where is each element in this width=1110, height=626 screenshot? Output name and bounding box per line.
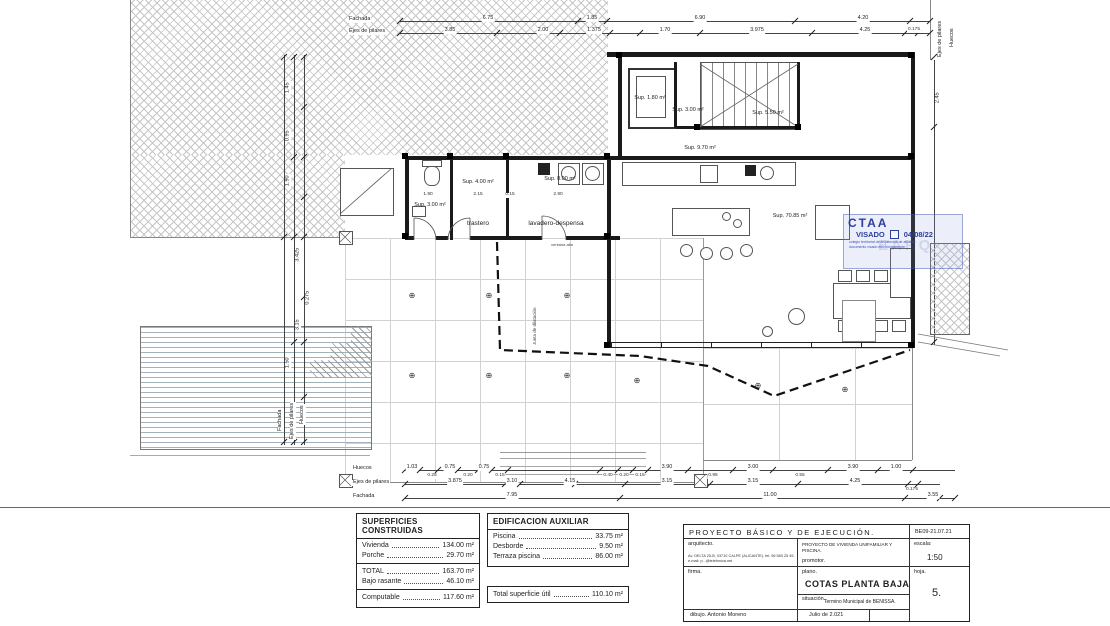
dim-label: 3.85 [444, 28, 457, 34]
level-marker-icon: ⊕ [409, 372, 416, 380]
drawing-sheet: ⊕ ⊕ ⊕ ⊕ ⊕ ⊕ ⊕ ⊕ ⊕ Sup. 3.00 m² Sup. 4.00… [0, 0, 1110, 626]
dim-label: 1.50 [285, 356, 291, 369]
dim-label: 4.20 [857, 16, 870, 22]
edificacion-auxiliar-table: EDIFICACION AUXILIAR Piscina33.75 m² Des… [487, 513, 629, 567]
dim-label: 2.45 [935, 91, 941, 104]
terrace-column [339, 474, 353, 488]
door-arc-1 [414, 218, 436, 240]
situacion-label: situación. [802, 596, 825, 602]
row-label: Porche [362, 552, 384, 559]
dim-label: 7.95 [506, 493, 519, 499]
junta-dilatacion-label: Junta de dilatación [532, 307, 537, 345]
column [604, 342, 610, 348]
corridor-area-label: Sup. 9.70 m² [684, 146, 716, 152]
dim-label: 3.875 [447, 479, 463, 485]
axis-fachada-bottom: Fachada [352, 494, 375, 500]
wall-service-left [405, 156, 409, 240]
axis-ejes-right: Ejes de pilares [938, 20, 944, 58]
title-block: PROYECTO BÁSICO Y DE EJECUCIÓN. BE09-21.… [683, 524, 970, 622]
axis-fachada-top: Fachada [348, 17, 371, 23]
dim-label: 2.15 [472, 193, 483, 198]
ventana-alta-label: ventana alta [551, 243, 573, 247]
stairs-area-label: Sup. 5.50 m² [752, 111, 784, 117]
axis-ejes-bottom: Ejes de pilares [352, 480, 390, 486]
dim-label: 1.85 [586, 16, 599, 22]
row-label: Desborde [493, 543, 523, 550]
promotor-label: promotor. [802, 558, 825, 564]
dim-label: 0.20 [462, 474, 473, 479]
axis-ejes-top: Ejes de pilares [348, 29, 386, 35]
living-area-label: Sup. 70.85 m² [773, 214, 808, 220]
column [616, 52, 622, 58]
hall-area-label: Sup. 3.00 m² [672, 108, 704, 114]
superficie-util-box: Total superficie útil110.10 m² [487, 586, 629, 603]
table-row: Piscina33.75 m² [493, 533, 623, 540]
dim-label: 1.45 [285, 81, 291, 94]
dim-label: 1.90 [422, 193, 433, 198]
dim-label: 0.55 [794, 474, 805, 479]
table-row: Terraza piscina86.00 m² [493, 553, 623, 560]
pouf [762, 326, 773, 337]
dim-line [400, 21, 930, 22]
fecha-value: Julio de 2.021 [809, 612, 843, 618]
wall-stairs-right [797, 62, 800, 128]
lightwell-square [340, 168, 394, 216]
stool [720, 247, 733, 260]
axis-fachada-left: Fachada [278, 409, 284, 432]
escala-label: escala: [914, 541, 931, 547]
dim-label: 3.425 [295, 247, 301, 263]
table-row: Total superficie útil110.10 m² [493, 591, 623, 598]
wall-service-bottom-4 [566, 236, 620, 240]
row-value: 29.70 m² [446, 552, 474, 559]
dim-label: 0.75 [478, 465, 491, 471]
project-description: PROYECTO DE VIVIENDA UNIFAMILIAR Y PISCI… [802, 542, 906, 554]
level-marker-icon: ⊕ [755, 382, 762, 390]
dim-label: 4.25 [859, 28, 872, 34]
dim-label: 2.90 [552, 193, 563, 198]
table-title: SUPERFICIES CONSTRUIDAS [357, 517, 479, 539]
pool-lower-line [130, 455, 370, 456]
terrace-bottom-edge-right [703, 460, 912, 461]
burner-icon [733, 219, 742, 228]
wall-trastero-lavadero [506, 156, 509, 240]
plano-value: COTAS PLANTA BAJA [805, 579, 909, 589]
dim-label: 1.03 [406, 465, 419, 471]
terrace-column [694, 474, 708, 488]
exterior-steps-right [918, 334, 1008, 356]
row-label: Total superficie útil [493, 591, 551, 598]
dim-label: 0.15 [504, 193, 515, 198]
toilet-icon [424, 166, 440, 186]
level-marker-icon: ⊕ [409, 292, 416, 300]
row-value: 9.50 m² [599, 543, 623, 550]
row-value: 86.00 m² [595, 553, 623, 560]
axis-huecos-left: Huecos [300, 404, 306, 425]
wall-elevator-right [674, 62, 677, 128]
dim-label: 4.25 [849, 479, 862, 485]
pouf [788, 308, 805, 325]
table-separator [357, 589, 479, 590]
dim-line [284, 55, 285, 445]
dryer-drum-icon [585, 166, 600, 181]
axis-ejes-left: Ejes de pilares [290, 402, 296, 440]
dim-label: 3.00 [747, 465, 760, 471]
chair [856, 270, 870, 282]
row-value: 33.75 m² [595, 533, 623, 540]
row-value: 46.10 m² [446, 578, 474, 585]
sink-icon [760, 166, 774, 180]
column [908, 153, 914, 159]
chair [892, 320, 906, 332]
column [447, 153, 453, 159]
superficies-construidas-table: SUPERFICIES CONSTRUIDAS Vivienda134.00 m… [356, 513, 480, 608]
burner-icon [722, 212, 731, 221]
dim-label: 0.95 [285, 129, 291, 142]
table-row: Porche29.70 m² [362, 552, 474, 559]
dim-label: 3.975 [749, 28, 765, 34]
bath-area-label: Sup. 3.00 m² [414, 203, 446, 209]
wall-living-top [607, 156, 915, 160]
trastero-area-label: Sup. 4.00 m² [462, 180, 494, 186]
dim-line [405, 498, 955, 499]
table-row: Vivienda134.00 m² [362, 542, 474, 549]
column [604, 153, 610, 159]
chair [874, 270, 888, 282]
level-marker-icon: ⊕ [486, 292, 493, 300]
ground-hatch-topleft [130, 0, 608, 155]
dim-label: 3.10 [506, 479, 519, 485]
wall-bath-trastero [450, 156, 453, 240]
site-edge-left [130, 0, 131, 238]
row-label: Vivienda [362, 542, 389, 549]
hoja-label: hoja. [914, 569, 926, 575]
dim-label: 0.15 [634, 474, 645, 479]
dim-label: 3.90 [847, 465, 860, 471]
appliance-icon [538, 163, 550, 175]
level-marker-icon: ⊕ [486, 372, 493, 380]
dim-label: 0.20 [618, 474, 629, 479]
trastero-name-label: trastero [467, 221, 489, 228]
wall-living-left [607, 156, 611, 348]
project-ref: BE09-21.07.21 [915, 529, 952, 535]
row-label: Computable [362, 594, 400, 601]
dim-label: 0.95 [707, 474, 718, 479]
dim-label: 0.40 [602, 474, 613, 479]
lavadero-area-label: Sup. 8.00 m² [544, 177, 576, 183]
column [604, 233, 610, 239]
table-row: Computable117.60 m² [362, 594, 474, 601]
row-label: Terraza piscina [493, 553, 540, 560]
project-title: PROYECTO BÁSICO Y DE EJECUCIÓN. [689, 528, 875, 537]
wall-living-right [911, 55, 915, 348]
dibujo-credit: dibujo. Antonio Moreno [690, 612, 746, 618]
stool [700, 247, 713, 260]
dim-label: 0.75 [444, 465, 457, 471]
axis-huecos-bottom: Huecos [352, 466, 373, 472]
table-row: Bajo rasante46.10 m² [362, 578, 474, 585]
visado-stamp: CTAA EARQ VISADO 04/08/22 colegio territ… [843, 214, 963, 269]
toilet-tank-icon [422, 160, 442, 167]
column [795, 124, 801, 130]
arquitecto-address-1: Av. DELTA 25-B, 03710 CALPE (ALICANTE). … [688, 554, 795, 558]
escala-value: 1:50 [927, 553, 943, 562]
situacion-value: Termino Municipal de BENISSA. [824, 599, 896, 605]
column [402, 233, 408, 239]
dim-label: 2.00 [537, 28, 550, 34]
dim-label: 6.90 [694, 16, 707, 22]
terrace-column [339, 231, 353, 245]
chair [838, 270, 852, 282]
plano-label: plano. [802, 569, 817, 575]
wall-site-top [607, 52, 915, 57]
row-value: 110.10 m² [592, 591, 623, 598]
chair [874, 320, 888, 332]
dim-label: 1.375 [586, 28, 602, 34]
dim-label: 3.15 [295, 318, 301, 331]
terrace-top-edge [130, 237, 345, 238]
table-title: EDIFICACION AUXILIAR [488, 517, 628, 530]
level-marker-icon: ⊕ [842, 386, 849, 394]
wall-service-top [405, 156, 620, 160]
stool [680, 244, 693, 257]
site-edge-top-right [930, 0, 931, 60]
stamp-org-label: CTAA [844, 215, 962, 230]
dim-label: 3.15 [661, 479, 674, 485]
dim-label: 1.70 [659, 28, 672, 34]
terrace-right-edge [912, 348, 913, 460]
dim-label: 0.15 [494, 474, 505, 479]
terrace-tile-grid-right [703, 348, 912, 460]
column [503, 153, 509, 159]
hoja-value: 5. [932, 587, 941, 599]
dim-label: 0.25 [426, 474, 437, 479]
stool [740, 244, 753, 257]
dim-label: 0.275 [305, 290, 311, 306]
dim-line [304, 55, 305, 445]
ground-hatch-leftcol [130, 155, 345, 238]
stamp-watermark: EARQ [878, 237, 933, 254]
dim-label: 3.55 [927, 493, 940, 499]
column [908, 342, 914, 348]
sheet-separator [0, 507, 1110, 508]
table-separator [357, 563, 479, 564]
column [908, 52, 914, 58]
elevator-area-label: Sup. 1.80 m² [634, 96, 666, 102]
level-marker-icon: ⊕ [564, 292, 571, 300]
level-marker-icon: ⊕ [564, 372, 571, 380]
row-label: Piscina [493, 533, 516, 540]
dim-label: 11.00 [762, 493, 777, 499]
table-row: Desborde9.50 m² [493, 543, 623, 550]
firma-label: firma. [688, 569, 702, 575]
terrace-bottom-edge [345, 482, 703, 483]
glazing-south-facade [611, 342, 911, 348]
dim-label: 1.00 [890, 465, 903, 471]
level-marker-icon: ⊕ [634, 377, 641, 385]
axis-huecos-right: Huecos [950, 27, 956, 48]
oven-icon [745, 165, 756, 176]
staircase [700, 62, 800, 130]
dim-label: 4.15 [564, 479, 577, 485]
lavadero-name-label: lavadero-despensa [528, 221, 583, 228]
arquitecto-label: arquitecto. [688, 541, 714, 547]
dim-label: 3.15 [747, 479, 760, 485]
dim-label: 6.75 [482, 16, 495, 22]
dim-label: 1.90 [285, 174, 291, 187]
terrace-tile-grid [345, 238, 703, 482]
arquitecto-address-2: e-mail: p...@telefonica.net [688, 559, 732, 563]
row-value: 163.70 m² [442, 568, 474, 575]
grid-right-edge [703, 238, 704, 482]
column [694, 124, 700, 130]
dim-label: 3.90 [661, 465, 674, 471]
dim-label: 0.175 [905, 488, 919, 493]
column [402, 153, 408, 159]
hob-icon [700, 165, 718, 183]
dim-label: 0.175 [907, 28, 921, 33]
row-value: 134.00 m² [442, 542, 474, 549]
wall-service-bottom-2 [436, 236, 448, 240]
row-label: TOTAL [362, 568, 384, 575]
side-table [842, 300, 876, 342]
wall-upper-left [618, 55, 622, 160]
table-row: TOTAL163.70 m² [362, 568, 474, 575]
row-label: Bajo rasante [362, 578, 401, 585]
row-value: 117.60 m² [443, 594, 474, 601]
